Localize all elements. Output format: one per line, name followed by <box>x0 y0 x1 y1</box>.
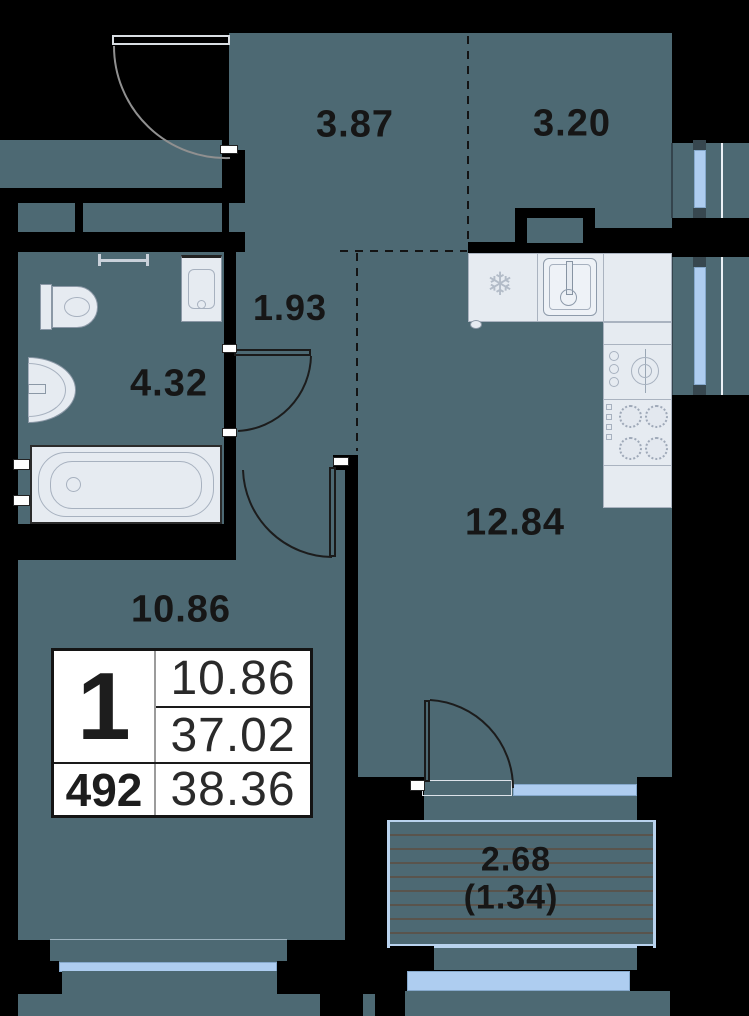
window-kitchen-upper <box>694 150 706 208</box>
loggia-rail-line <box>721 257 723 395</box>
floor-loggia-lower <box>672 257 749 395</box>
door-frame-mark <box>222 428 237 437</box>
oven-knob <box>609 351 619 361</box>
window-bay-cap <box>50 961 59 972</box>
balcony-border-bottom <box>390 944 653 946</box>
counter-divider <box>603 465 672 466</box>
entry-door-leaf <box>112 35 230 45</box>
wall-bay-left <box>0 940 50 995</box>
balcony-door-threshold <box>422 780 512 796</box>
floor-facade-strip-right <box>405 991 670 1016</box>
unit-info-card: 1 492 10.86 37.02 38.36 <box>51 648 313 818</box>
toilet-bowl-inner <box>64 297 90 317</box>
oven-knob <box>609 377 619 387</box>
towel-rail-end <box>146 254 149 266</box>
wall-outer-left <box>0 188 18 995</box>
window-balcony-door <box>513 784 637 796</box>
floor-facade-sliver <box>363 994 375 1016</box>
hob-burner <box>645 405 668 428</box>
balcony-border-right <box>653 820 656 948</box>
rooms-count: 1 <box>54 651 154 762</box>
wall-balcony-left <box>345 795 387 948</box>
zone-dashed-line <box>356 253 358 451</box>
hob-knob <box>606 434 612 440</box>
room-area-label-balcony-coef: (1.34) <box>464 879 559 918</box>
room-area-label-kitchen-zone: 3.20 <box>533 103 611 146</box>
unit-number: 492 <box>54 764 154 815</box>
room-area-label-entry-hall: 3.87 <box>316 104 394 147</box>
door-frame-mark <box>220 145 238 154</box>
floor-shaft-inner2 <box>527 218 583 243</box>
floor-plan: ❄ 3.87 3.20 1.93 4.32 12.84 10.86 2.68 (… <box>0 0 749 1016</box>
bathtub-tap <box>13 495 30 506</box>
wall-bathroom-right-upper <box>224 252 236 352</box>
room-area-label-balcony: 2.68 <box>481 841 551 880</box>
floor-entry-alcove <box>0 140 222 188</box>
counter-divider <box>603 344 672 345</box>
toilet-tank <box>40 284 52 330</box>
room-area-label-corridor: 1.93 <box>253 287 327 329</box>
wall-band-left <box>0 188 245 203</box>
loggia-rail-line <box>721 143 723 218</box>
wall-loggia-mid <box>672 218 749 257</box>
wall-top-right-block <box>672 0 749 143</box>
fridge-icon: ❄ <box>478 262 522 306</box>
window-kitchen-lower <box>694 267 706 385</box>
window-bay-cap <box>277 961 287 972</box>
basin-faucet <box>28 384 46 394</box>
zone-dashed-line <box>340 250 467 252</box>
floor-bay-strip <box>50 940 287 963</box>
window-balcony-outer <box>407 971 630 991</box>
room-area-label-kitchen-living: 12.84 <box>465 502 565 545</box>
counter-divider <box>603 399 672 400</box>
wall-kitchen-top-right <box>595 228 672 242</box>
door-frame-mark <box>222 344 237 353</box>
hob-knob <box>606 414 612 420</box>
fridge-foot <box>470 320 482 329</box>
counter-divider <box>603 253 604 322</box>
wall-entry <box>222 150 245 190</box>
bathtub-drain <box>66 477 81 492</box>
hob-burner <box>619 437 642 460</box>
wall-right-block <box>672 395 749 1016</box>
wall-balcony-door-right <box>637 777 672 797</box>
room-area-label-living: 10.86 <box>131 589 231 632</box>
wall-niche-divider <box>75 203 83 232</box>
total-area-value: 38.36 <box>156 764 310 815</box>
window-cap <box>693 385 706 395</box>
hob-burner <box>619 405 642 428</box>
floor-loggia-upper <box>672 143 749 218</box>
kitchen-faucet-base <box>560 289 577 306</box>
counter-divider <box>537 253 538 322</box>
wall-bay-mid <box>345 940 405 1016</box>
wall-bathroom-top <box>18 232 245 252</box>
hob-burner <box>645 437 668 460</box>
oven-knob <box>609 364 619 374</box>
living-door-leaf <box>329 467 336 557</box>
hob-knob <box>606 404 612 410</box>
towel-rail <box>100 259 148 262</box>
wall-bay-right <box>287 940 345 994</box>
hob-knob <box>606 424 612 430</box>
floor-niche-left <box>18 203 75 232</box>
main-area-value: 37.02 <box>156 708 310 762</box>
window-cap <box>693 140 706 150</box>
floor-balcony-step <box>424 797 637 820</box>
balcony-door-leaf <box>424 700 430 782</box>
door-frame-mark <box>410 780 425 791</box>
floor-balcony-outer <box>434 948 637 970</box>
bathroom-door-leaf <box>234 349 311 356</box>
washing-machine-knob <box>197 300 206 309</box>
living-area-value: 10.86 <box>156 651 310 706</box>
window-cap <box>693 208 706 218</box>
loggia-edge <box>671 143 673 218</box>
floor-corridor <box>236 232 358 560</box>
floor-facade-strip-left <box>18 994 320 1016</box>
floor-niche-right <box>83 203 222 232</box>
window-cap <box>693 257 706 267</box>
door-frame-mark <box>333 457 349 466</box>
zone-dashed-line <box>467 36 469 242</box>
oven-coil-inner <box>638 364 652 378</box>
bathtub-tap <box>13 459 30 470</box>
wall-bathroom-bottom <box>18 524 236 560</box>
floor-bay-outer <box>62 971 277 994</box>
wall-top <box>227 0 712 33</box>
wall-balc-cap-right <box>637 948 670 991</box>
wall-bathroom-right-lower <box>224 428 236 524</box>
towel-rail-end <box>98 254 101 266</box>
room-area-label-bathroom: 4.32 <box>130 363 208 406</box>
